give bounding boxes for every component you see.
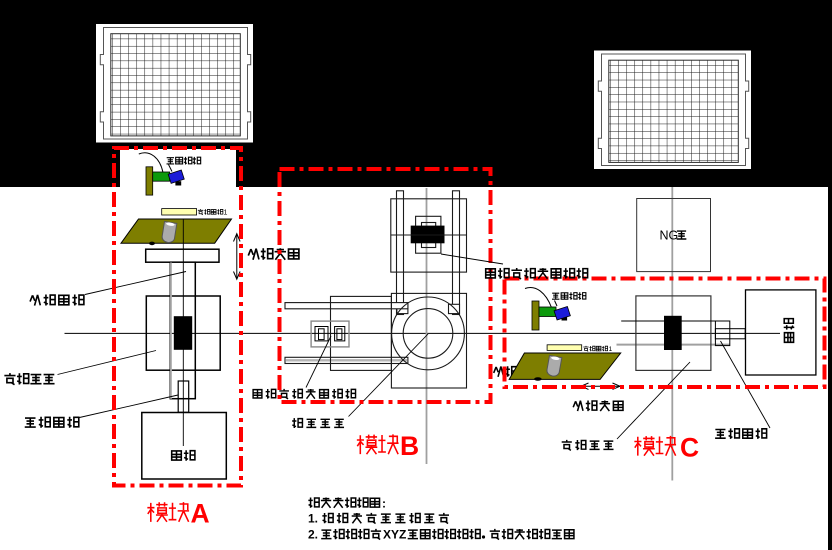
svg-text:NG: NG: [660, 228, 679, 242]
svg-text:XYZ: XYZ: [383, 527, 406, 541]
svg-text:1.: 1.: [308, 511, 318, 525]
svg-text:1: 1: [609, 346, 613, 353]
svg-text:2.: 2.: [308, 527, 318, 541]
svg-text:A: A: [191, 499, 210, 529]
svg-text:B: B: [400, 431, 419, 461]
svg-text::: :: [382, 497, 386, 511]
svg-text:1: 1: [224, 210, 228, 217]
svg-text:C: C: [680, 433, 699, 463]
